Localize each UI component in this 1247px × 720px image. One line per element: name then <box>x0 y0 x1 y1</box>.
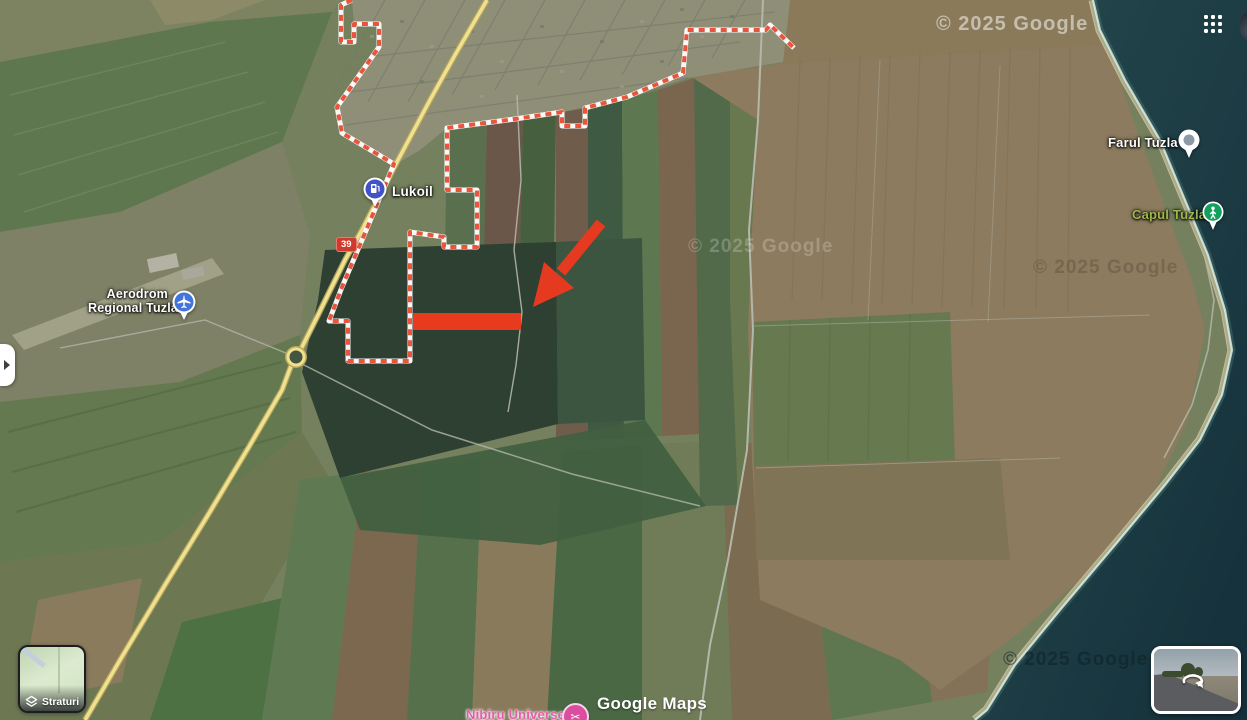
copyright-watermark: © 2025 Google <box>1003 649 1148 671</box>
google-apps-grid-button[interactable] <box>1203 14 1225 36</box>
cape-pin-icon[interactable] <box>1201 200 1225 232</box>
google-maps-logo: Google Maps <box>597 694 707 714</box>
copyright-watermark: © 2025 Google <box>688 236 833 258</box>
lighthouse-label[interactable]: Farul Tuzla <box>1108 135 1178 150</box>
copyright-watermark: © 2025 Google <box>936 13 1088 36</box>
business-label[interactable]: Nibiru Universe <box>466 707 565 720</box>
lighthouse-pin-icon[interactable] <box>1177 128 1201 160</box>
chevron-right-icon <box>4 360 10 370</box>
layers-button[interactable]: Straturi <box>18 645 86 713</box>
copyright-watermark: © 2025 Google <box>1033 257 1178 279</box>
streetview-thumbnail[interactable] <box>1151 646 1241 714</box>
apps-grid-icon <box>1204 15 1208 19</box>
side-panel-toggle[interactable] <box>0 344 15 386</box>
google-maps-satellite-view[interactable]: © 2025 Google © 2025 Google © 2025 Googl… <box>0 0 1247 720</box>
airport-label[interactable]: AerodromRegional Tuzla <box>88 287 168 315</box>
pan-around-icon <box>1178 671 1208 691</box>
airport-pin-icon[interactable] <box>171 289 197 322</box>
gas-station-label[interactable]: Lukoil <box>392 184 433 199</box>
layers-button-label: Straturi <box>42 696 79 708</box>
minimap-road <box>18 645 46 668</box>
route-39-badge: 39 <box>336 237 357 252</box>
scissors-icon: ✂ <box>570 710 580 720</box>
cape-label[interactable]: Capul Tuzla <box>1132 207 1206 222</box>
layers-icon <box>25 695 38 708</box>
satellite-imagery <box>0 0 1247 720</box>
gas-station-pin-icon[interactable] <box>362 176 388 209</box>
